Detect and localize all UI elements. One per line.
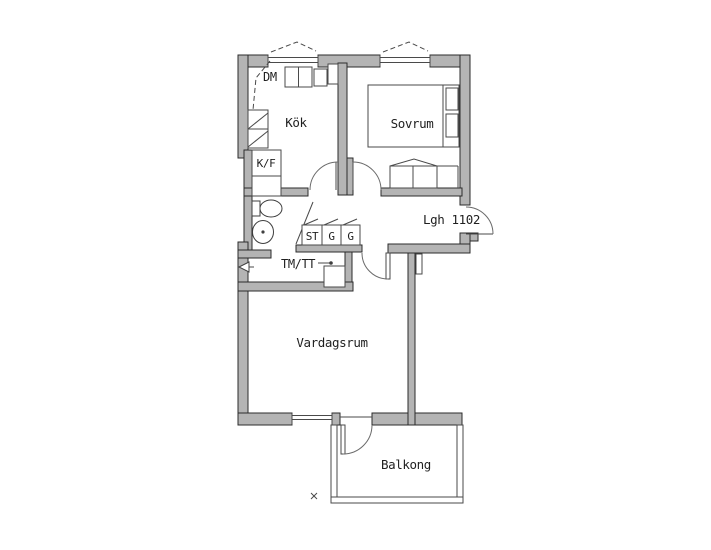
wardrobe-symbol — [390, 159, 458, 188]
cleaning-closet-label: ST — [306, 230, 319, 243]
duct-shaft-symbol — [416, 254, 422, 274]
bedroom-door — [353, 162, 381, 190]
floor-plan: Kök Sovrum Vardagsrum Balkong Lgh 1102 D… — [0, 0, 711, 550]
balcony-door — [340, 417, 372, 454]
floor-plan-canvas: Kök Sovrum Vardagsrum Balkong Lgh 1102 D… — [0, 0, 711, 550]
balcony-label: Balkong — [381, 457, 431, 472]
apartment-number-label: Lgh 1102 — [423, 212, 480, 227]
wardrobe1-label: G — [328, 230, 334, 243]
wardrobe2-label: G — [347, 230, 353, 243]
fridge-freezer-label: K/F — [257, 157, 276, 170]
washer-dryer-label: TM/TT — [281, 257, 315, 271]
window-opening-mark — [271, 42, 316, 52]
toilet-symbol — [252, 200, 282, 217]
bedroom-label: Sovrum — [391, 116, 434, 131]
kitchen-counter-symbol — [285, 64, 338, 87]
living-room-label: Vardagsrum — [296, 335, 367, 350]
bedroom-window — [380, 42, 430, 67]
sink-symbol — [253, 221, 274, 244]
living-room-door — [362, 253, 390, 279]
window-opening-mark — [383, 42, 428, 52]
kitchen-label: Kök — [285, 115, 307, 130]
kitchen-door — [310, 162, 338, 190]
living-room-window — [292, 414, 332, 425]
dishwasher-label: DM — [263, 70, 277, 84]
kitchen-window — [268, 42, 318, 67]
